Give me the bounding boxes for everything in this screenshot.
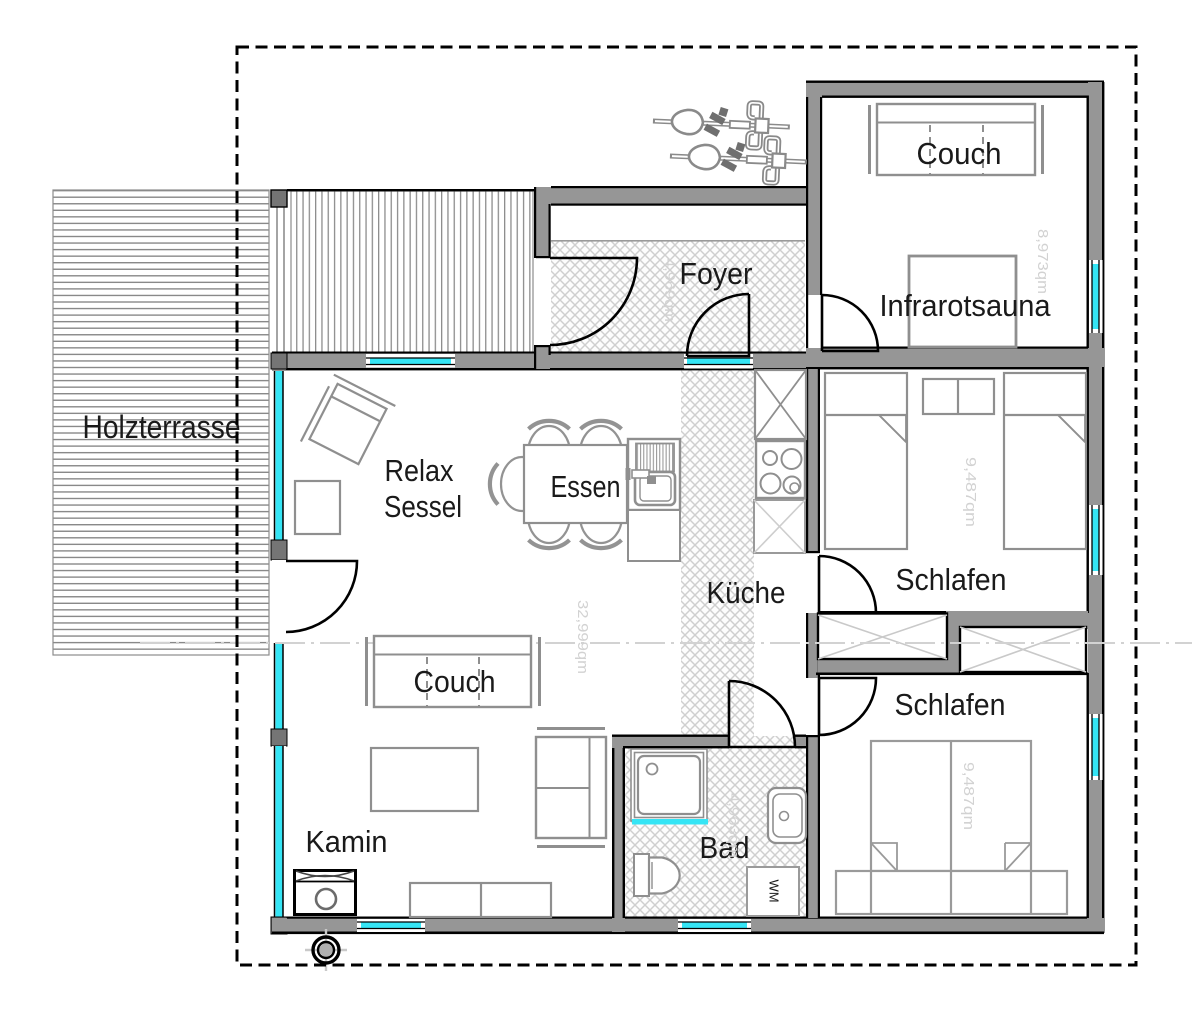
svg-text:Holzterrasse: Holzterrasse <box>83 409 241 445</box>
svg-text:Sessel: Sessel <box>384 489 462 524</box>
svg-text:4,963qm: 4,963qm <box>725 793 742 858</box>
svg-text:Schlafen: Schlafen <box>896 562 1007 597</box>
svg-text:Couch: Couch <box>917 136 1002 171</box>
svg-text:9,487qm: 9,487qm <box>962 457 979 527</box>
svg-text:Foyer: Foyer <box>680 256 753 291</box>
svg-text:WM: WM <box>767 879 782 902</box>
svg-text:Küche: Küche <box>707 575 786 610</box>
svg-text:8,973qm: 8,973qm <box>1034 229 1051 294</box>
svg-text:Relax: Relax <box>385 453 454 488</box>
svg-text:Infrarotsauna: Infrarotsauna <box>880 288 1052 323</box>
svg-text:9,487qm: 9,487qm <box>960 762 977 830</box>
svg-text:Schlafen: Schlafen <box>895 687 1006 722</box>
svg-text:Kamin: Kamin <box>306 824 388 859</box>
svg-text:32,999qm: 32,999qm <box>574 600 591 674</box>
svg-text:Essen: Essen <box>551 469 621 504</box>
svg-text:4,969qm: 4,969qm <box>661 258 678 322</box>
svg-text:Couch: Couch <box>414 664 496 699</box>
